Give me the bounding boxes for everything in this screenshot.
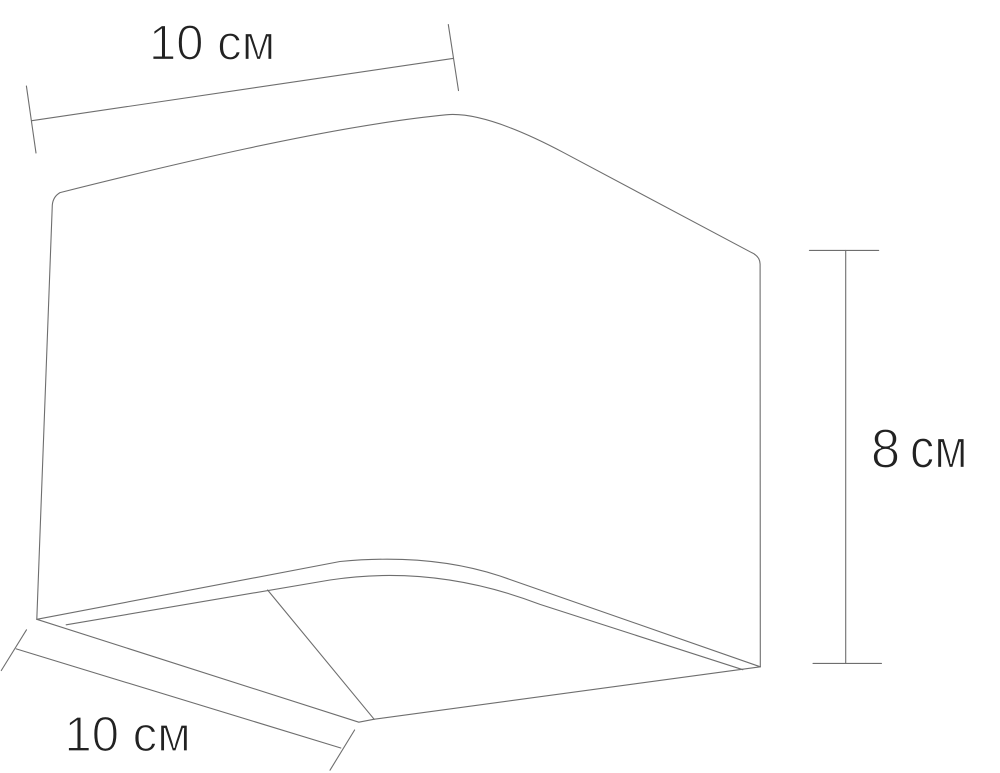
svg-text:10 см: 10 см: [149, 17, 275, 71]
svg-text:8: 8: [871, 418, 900, 480]
svg-text:см: см: [910, 418, 967, 480]
svg-text:10 см: 10 см: [65, 708, 191, 762]
